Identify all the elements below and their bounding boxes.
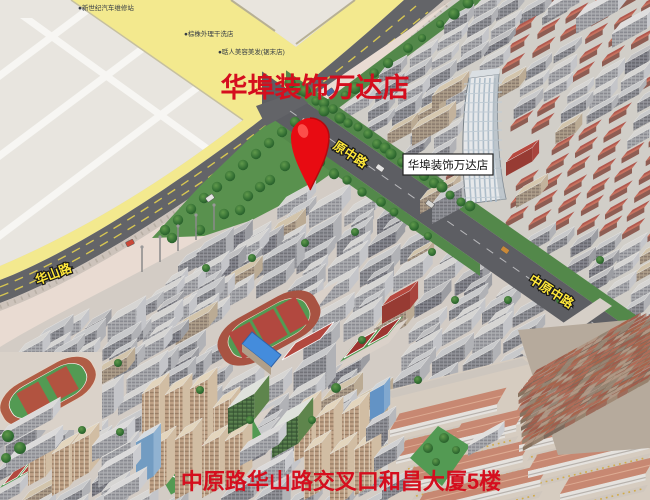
svg-text:●新世纪汽车维修站: ●新世纪汽车维修站 — [78, 3, 134, 12]
svg-text:华埠装饰万达店: 华埠装饰万达店 — [221, 72, 410, 103]
svg-text:中原路华山路交叉口和昌大厦5楼: 中原路华山路交叉口和昌大厦5楼 — [181, 469, 501, 494]
svg-text:华埠装饰万达店: 华埠装饰万达店 — [408, 158, 489, 172]
svg-text:●棕株外理干洗店: ●棕株外理干洗店 — [184, 29, 234, 38]
svg-text:●聒人美容美发(锯末店): ●聒人美容美发(锯末店) — [218, 47, 285, 56]
